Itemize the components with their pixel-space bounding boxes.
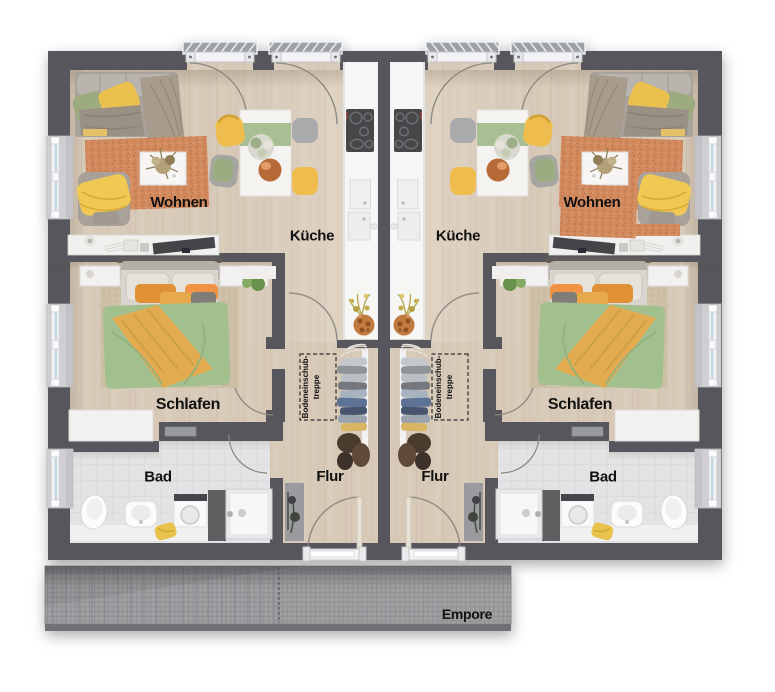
svg-text:Bodeneinschub-: Bodeneinschub- xyxy=(301,355,310,418)
svg-text:Bad: Bad xyxy=(144,469,172,486)
svg-text:Schlafen: Schlafen xyxy=(548,396,612,413)
svg-text:Küche: Küche xyxy=(290,228,334,245)
svg-text:Flur: Flur xyxy=(316,468,344,485)
svg-text:Wohnen: Wohnen xyxy=(150,194,207,211)
svg-text:Küche: Küche xyxy=(436,228,480,245)
svg-text:Wohnen: Wohnen xyxy=(563,194,620,211)
svg-text:treppe: treppe xyxy=(312,374,321,399)
svg-text:Flur: Flur xyxy=(421,468,449,485)
svg-text:treppe: treppe xyxy=(445,374,454,399)
svg-text:Bad: Bad xyxy=(589,469,617,486)
svg-text:Schlafen: Schlafen xyxy=(156,396,220,413)
svg-text:Empore: Empore xyxy=(442,606,493,622)
svg-text:Bodeneinschub-: Bodeneinschub- xyxy=(434,355,443,418)
